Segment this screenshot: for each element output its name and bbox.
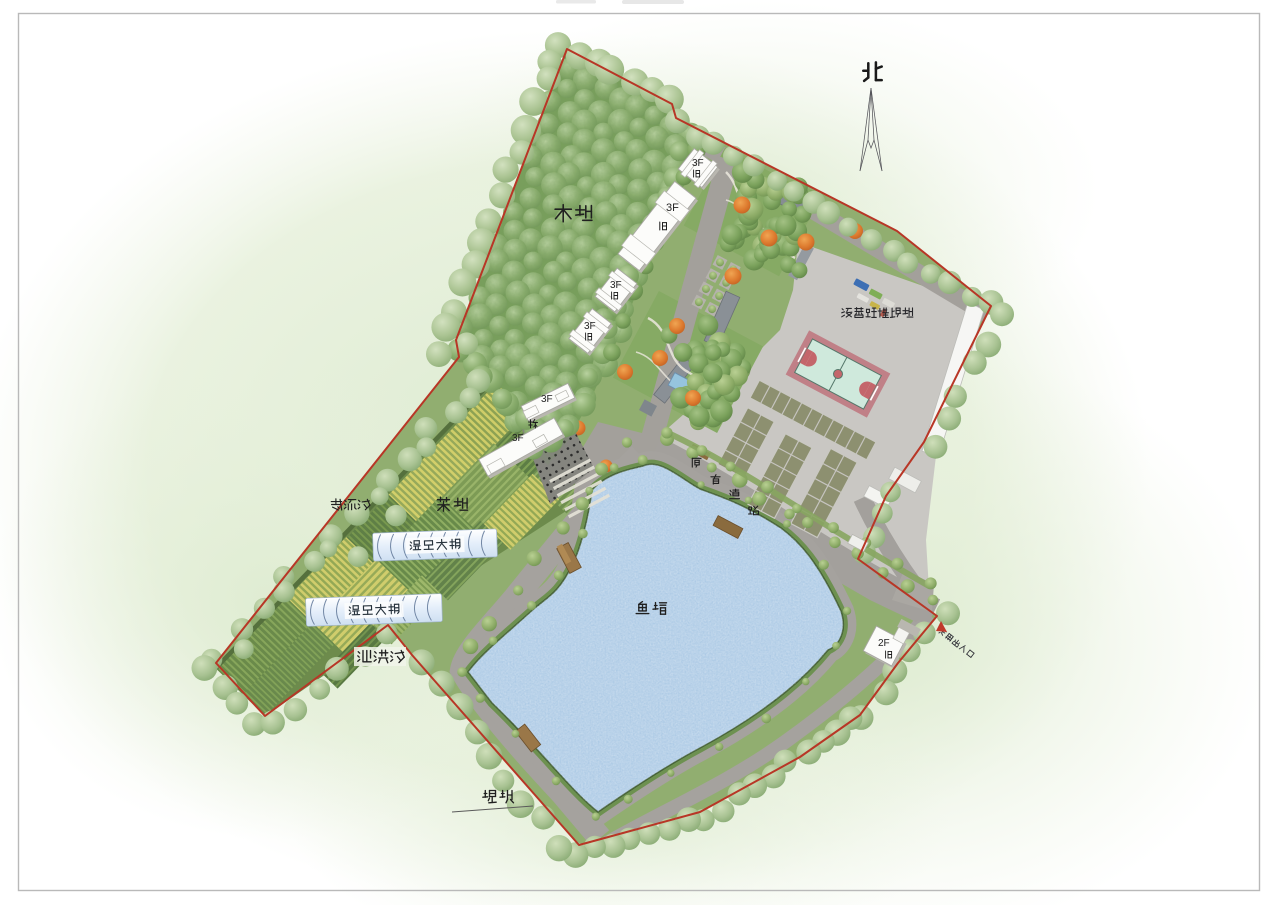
svg-text:3F: 3F [610,280,622,291]
svg-text:3F: 3F [666,202,679,214]
svg-text:2F: 2F [878,638,890,649]
svg-text:3F: 3F [512,433,524,444]
svg-text:3F: 3F [584,321,596,332]
svg-text:3F: 3F [541,394,553,405]
svg-text:3F: 3F [692,158,704,169]
